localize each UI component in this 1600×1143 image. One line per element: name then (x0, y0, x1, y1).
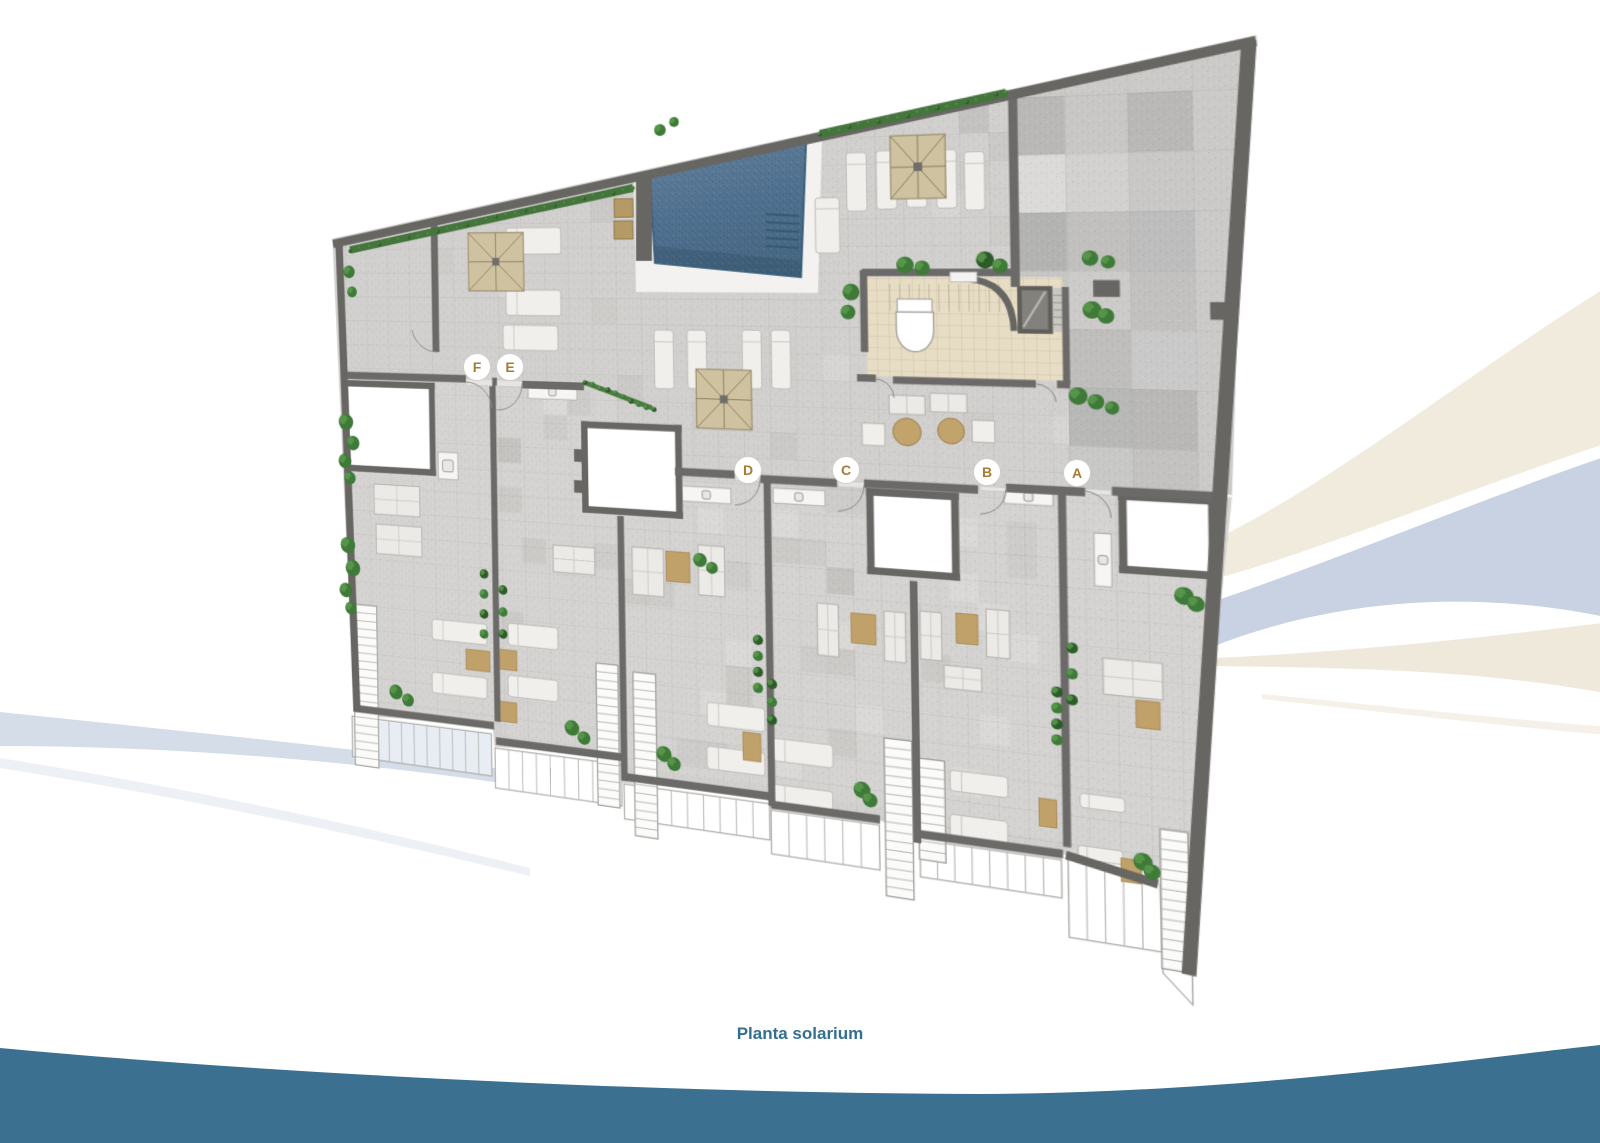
svg-text:B: B (982, 464, 992, 480)
svg-text:D: D (743, 462, 753, 478)
svg-text:E: E (505, 359, 514, 375)
svg-text:Planta solarium: Planta solarium (737, 1024, 864, 1043)
svg-text:F: F (473, 359, 482, 375)
svg-text:A: A (1072, 465, 1082, 481)
svg-text:C: C (841, 462, 851, 478)
